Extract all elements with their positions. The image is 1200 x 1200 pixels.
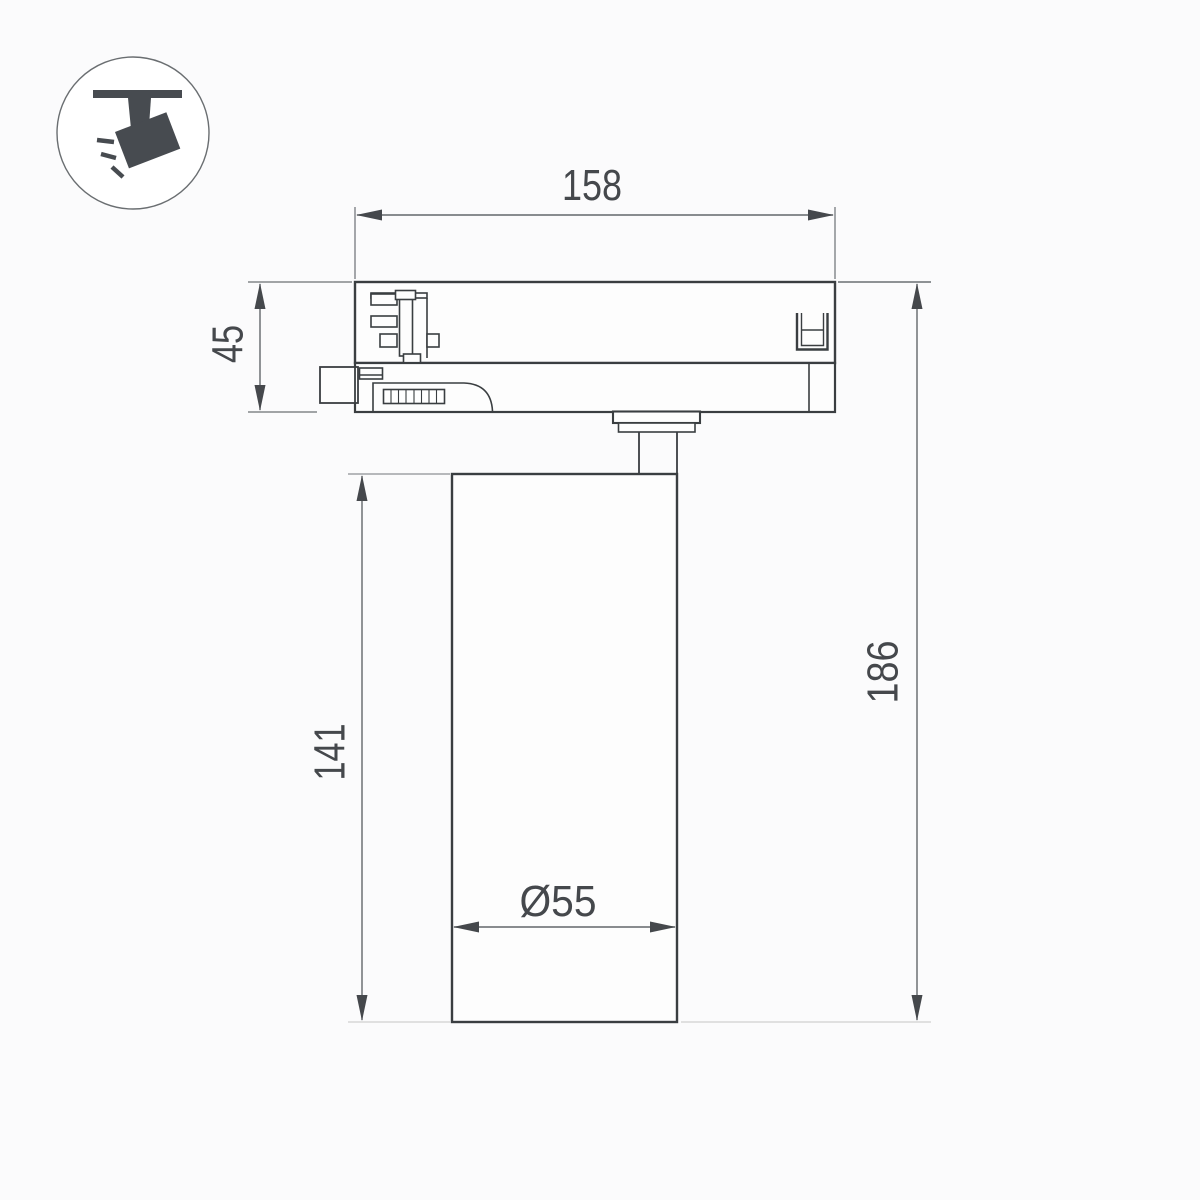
arrow-up-icon [255, 283, 266, 309]
swivel-mount [613, 412, 700, 476]
adapter-lower-deck [355, 363, 835, 412]
arrow-down-icon [357, 995, 368, 1021]
dim-55-label: Ø55 [520, 877, 597, 926]
dim-158-label: 158 [562, 161, 622, 210]
track-spotlight-icon [57, 57, 209, 209]
adapter-latch-clip [360, 368, 383, 379]
arrow-left-icon [356, 210, 382, 221]
adapter-latch-lever [320, 367, 358, 403]
dim-141-label: 141 [306, 724, 355, 781]
arrow-down-icon [912, 995, 923, 1021]
lamp-cylinder-body [452, 474, 677, 1022]
track-adapter [320, 282, 835, 475]
arrow-right-icon [808, 210, 834, 221]
phase-selector-switch [384, 390, 445, 404]
dim-186-label: 186 [859, 641, 908, 704]
arrow-up-icon [357, 475, 368, 501]
icon-track-bar [93, 90, 182, 98]
dimension-141: 141 [306, 474, 451, 1022]
arrow-up-icon [912, 283, 923, 309]
dimension-158: 158 [355, 161, 835, 279]
dimension-drawing-svg: 158 45 141 186 Ø55 [0, 0, 1200, 1200]
dim-45-label: 45 [204, 325, 253, 363]
drawing-canvas: 158 45 141 186 Ø55 [0, 0, 1200, 1200]
arrow-down-icon [255, 385, 266, 411]
